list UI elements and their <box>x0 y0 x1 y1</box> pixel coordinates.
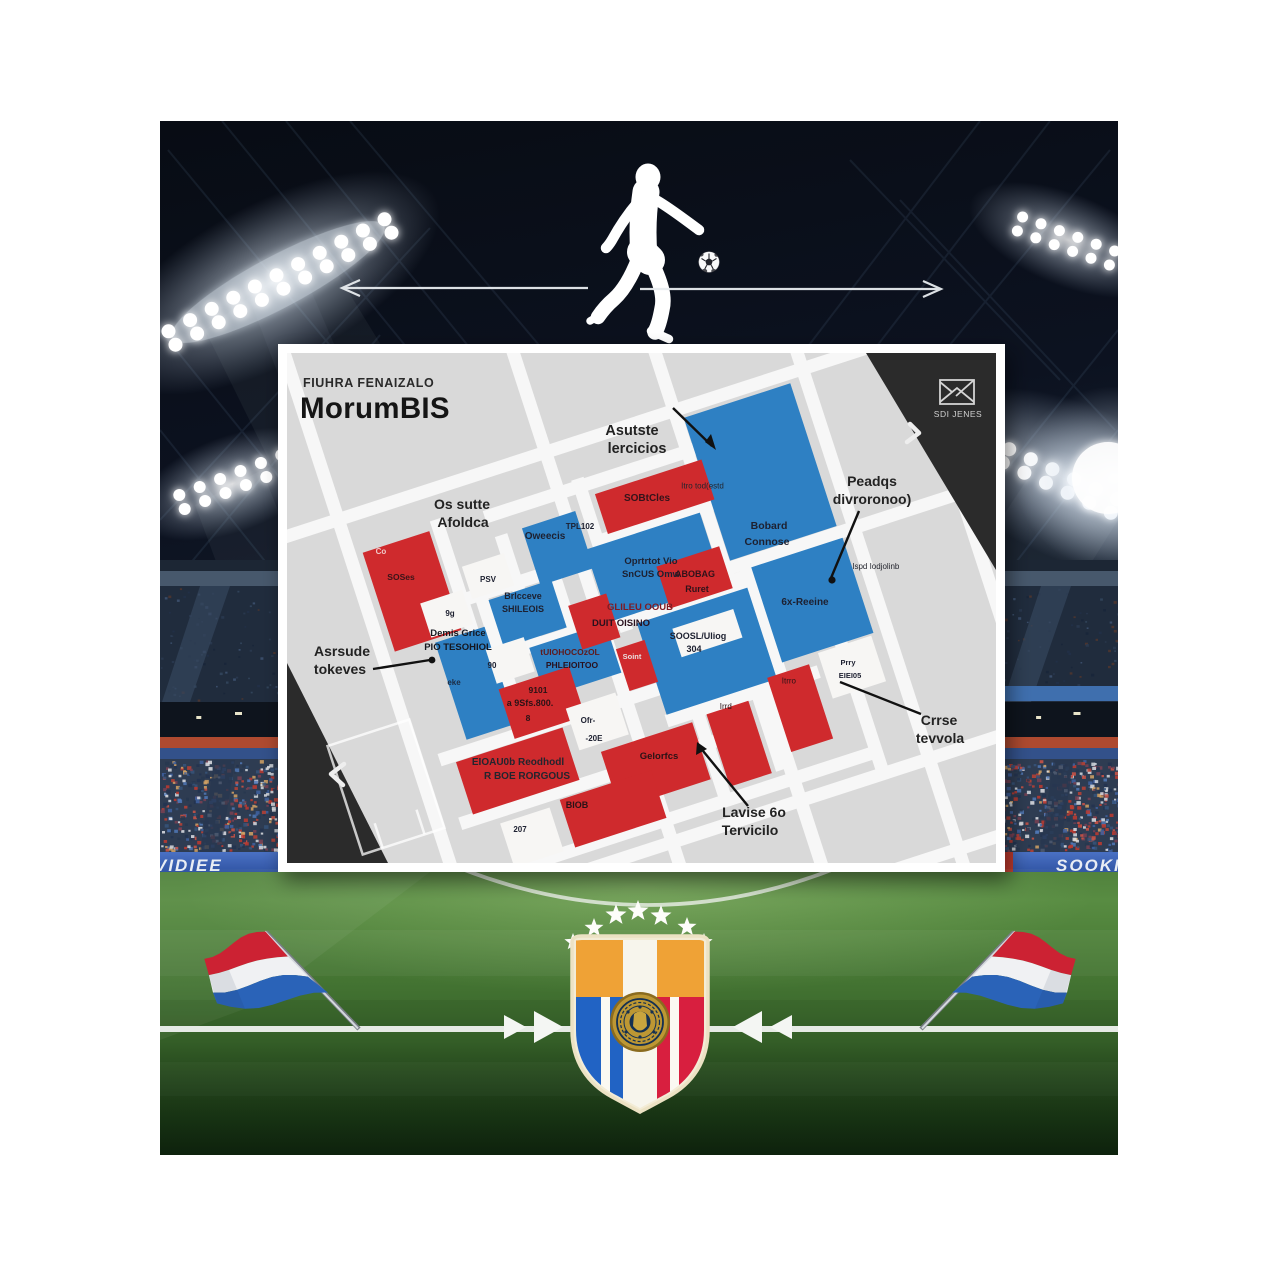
svg-text:9101: 9101 <box>529 685 548 695</box>
svg-text:MorumBIS: MorumBIS <box>300 392 450 425</box>
svg-text:Bobard: Bobard <box>751 520 788 532</box>
svg-text:207: 207 <box>513 825 527 834</box>
svg-text:9g: 9g <box>445 609 454 618</box>
svg-text:Ofr-: Ofr- <box>581 716 596 725</box>
svg-text:Connose: Connose <box>745 536 790 548</box>
svg-text:6x-Reeine: 6x-Reeine <box>781 597 829 608</box>
svg-text:Lavise 6o: Lavise 6o <box>722 804 786 820</box>
svg-text:R BOE RORGOUS: R BOE RORGOUS <box>484 771 570 782</box>
svg-text:SDI JENES: SDI JENES <box>934 409 982 419</box>
svg-text:Demis Grice: Demis Grice <box>430 628 485 639</box>
svg-text:EIEI05: EIEI05 <box>839 671 862 680</box>
svg-text:Oprtrtot Vio: Oprtrtot Vio <box>624 556 677 567</box>
svg-text:304: 304 <box>686 644 701 654</box>
svg-text:Crrse: Crrse <box>921 712 958 728</box>
svg-text:Oweecis: Oweecis <box>525 531 566 542</box>
svg-text:BIOB: BIOB <box>566 800 589 810</box>
svg-text:Ruret: Ruret <box>685 584 709 594</box>
svg-text:eke: eke <box>447 678 461 687</box>
svg-text:SHILEOIS: SHILEOIS <box>502 604 544 614</box>
svg-text:lercicios: lercicios <box>608 441 667 457</box>
svg-text:EIOAU0b Reodhodl: EIOAU0b Reodhodl <box>472 757 564 768</box>
svg-text:PHLEIOITOO: PHLEIOITOO <box>546 660 599 670</box>
svg-text:Brlcceve: Brlcceve <box>504 591 542 601</box>
svg-text:Asutste: Asutste <box>605 423 658 439</box>
svg-text:ABOBAG: ABOBAG <box>675 569 715 579</box>
svg-text:Prry: Prry <box>840 658 856 667</box>
svg-text:-20E: -20E <box>586 734 604 743</box>
svg-text:tevvola: tevvola <box>916 730 964 746</box>
svg-text:PSV: PSV <box>480 575 497 584</box>
svg-text:SOSes: SOSes <box>387 572 415 582</box>
svg-text:SOBtCles: SOBtCles <box>624 493 671 504</box>
svg-text:SnCUS Omw: SnCUS Omw <box>622 569 681 580</box>
svg-text:Tervicilo: Tervicilo <box>722 822 779 838</box>
svg-text:DUIT OISINO: DUIT OISINO <box>592 618 650 629</box>
svg-text:8: 8 <box>526 713 531 723</box>
svg-text:Soint: Soint <box>623 652 642 661</box>
svg-text:a 9Sfs.800.: a 9Sfs.800. <box>507 698 554 708</box>
svg-text:tUIOHOCOzOL: tUIOHOCOzOL <box>540 647 600 657</box>
svg-text:FIUHRA FENAIZALO: FIUHRA FENAIZALO <box>303 376 434 390</box>
svg-text:Irrd: Irrd <box>720 702 732 711</box>
svg-text:Ispd Iodjolinb: Ispd Iodjolinb <box>852 562 900 571</box>
svg-text:90: 90 <box>488 661 497 670</box>
svg-text:divroronoo): divroronoo) <box>833 491 912 507</box>
svg-text:tokeves: tokeves <box>314 661 366 677</box>
svg-text:Afoldca: Afoldca <box>437 514 489 530</box>
svg-text:PIO TESOHIOL: PIO TESOHIOL <box>424 642 492 653</box>
svg-text:Asrsude: Asrsude <box>314 643 370 659</box>
svg-text:Itro tod(estd: Itro tod(estd <box>681 482 724 491</box>
svg-text:Os sutte: Os sutte <box>434 496 490 512</box>
svg-text:Peadqs: Peadqs <box>847 473 897 489</box>
svg-text:Co: Co <box>376 547 387 556</box>
svg-text:Itrro: Itrro <box>782 676 797 685</box>
svg-text:Gelorfcs: Gelorfcs <box>640 751 679 762</box>
svg-text:SOOSL/Uliog: SOOSL/Uliog <box>670 631 727 641</box>
svg-text:GLILEU OOUB: GLILEU OOUB <box>607 602 673 613</box>
svg-text:TPL102: TPL102 <box>566 522 595 531</box>
